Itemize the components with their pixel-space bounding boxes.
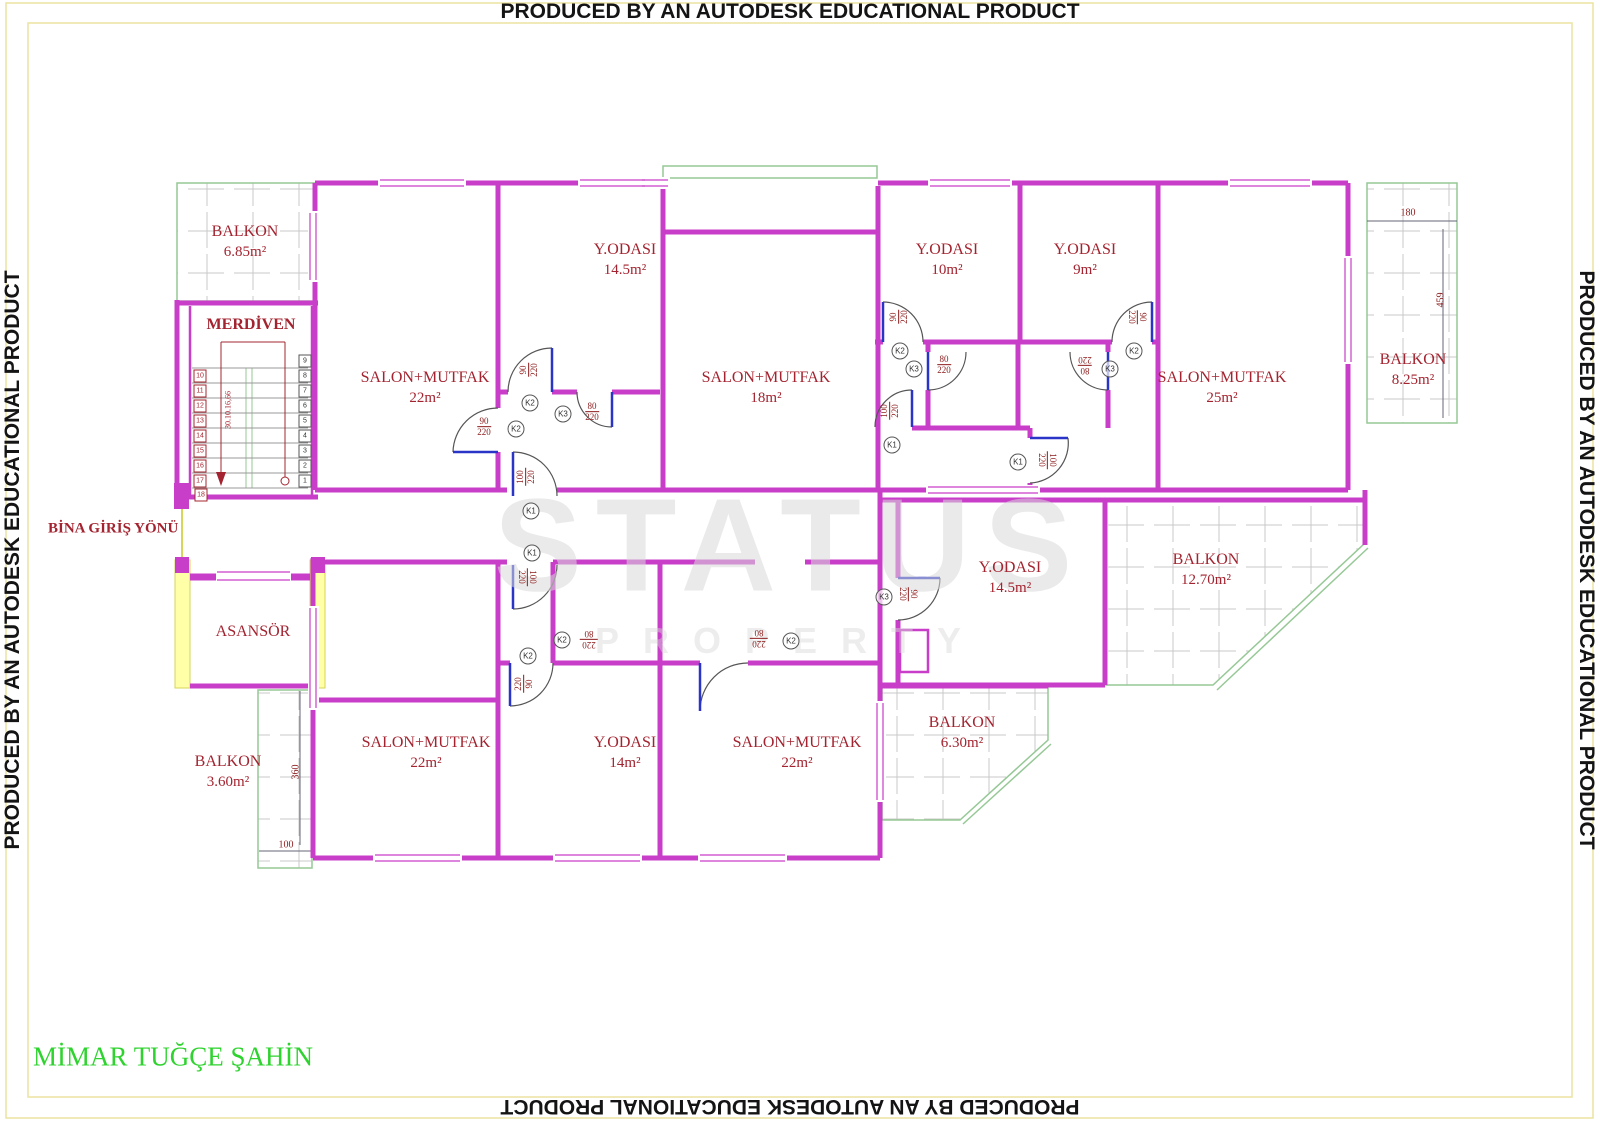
stair-treads <box>192 368 308 488</box>
stairs-label: MERDİVEN <box>207 316 296 334</box>
elevator-shaft <box>175 505 325 688</box>
stair-note: 30.10.16,66 <box>224 391 233 429</box>
stamp-top: PRODUCED BY AN AUTODESK EDUCATIONAL PROD… <box>500 0 1079 24</box>
floorplan-page: { "stamps": { "text": "PRODUCED BY AN AU… <box>0 0 1600 1122</box>
architect-signature: MİMAR TUĞÇE ŞAHİN <box>33 1042 313 1073</box>
stamp-right: PRODUCED BY AN AUTODESK EDUCATIONAL PROD… <box>1574 270 1598 849</box>
elevator-label: ASANSÖR <box>216 623 291 641</box>
watermark-property: PROPERTY <box>595 620 985 662</box>
entrance-direction-label: BİNA GİRİŞ YÖNÜ <box>48 521 178 538</box>
stamp-left: PRODUCED BY AN AUTODESK EDUCATIONAL PROD… <box>1 270 25 849</box>
watermark-status: STATUS <box>494 470 1086 621</box>
stair-step-number: 18 <box>195 489 208 502</box>
stamp-bottom: PRODUCED BY AN AUTODESK EDUCATIONAL PROD… <box>500 1094 1079 1118</box>
